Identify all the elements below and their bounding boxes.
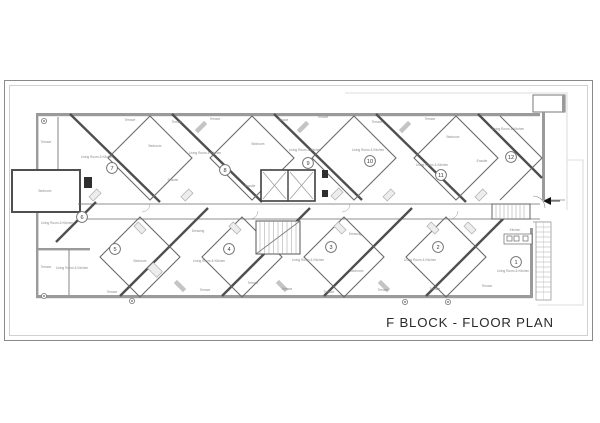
room-label: Terrace: [107, 290, 118, 294]
room-label: Terrace: [282, 287, 293, 291]
room-label: Terrace: [324, 290, 335, 294]
room-label: Terrace: [210, 117, 221, 121]
svg-text:2: 2: [436, 245, 439, 251]
room-label: Living Room & Kitchen: [492, 127, 524, 131]
svg-text:8: 8: [223, 168, 226, 174]
room-label: Terrace: [378, 288, 389, 292]
room-label: Living Room & Kitchen: [41, 221, 73, 225]
column-marker-icon: [41, 118, 46, 123]
unit-number-badge: 9: [303, 158, 314, 169]
room-label: Bedroom: [252, 142, 265, 146]
room-label: Dressing: [192, 229, 205, 233]
room-label: Terrace: [248, 281, 259, 285]
room-label: Living Room & Kitchen: [56, 266, 88, 270]
room-label: Terrace: [200, 288, 211, 292]
room-label: Living Room & Kitchen: [352, 148, 384, 152]
svg-text:4: 4: [227, 247, 230, 253]
svg-text:6: 6: [80, 215, 83, 221]
room-label: Terrace: [482, 284, 493, 288]
drawing-title: F BLOCK - FLOOR PLAN: [386, 315, 554, 330]
room-label: Terrace: [372, 120, 383, 124]
room-label: Living Room & Kitchen: [416, 163, 448, 167]
room-label: Terrace: [278, 118, 289, 122]
room-label: Living Room & Kitchen: [193, 259, 225, 263]
right-wall-upper: [542, 112, 545, 200]
unit-number-badge: 1: [511, 257, 522, 268]
room-label: Living Room & Kitchen: [81, 155, 113, 159]
column-marker-icon: [445, 299, 450, 304]
room-label: Terrace: [125, 118, 136, 122]
lift-core: [261, 170, 315, 201]
room-label: Living Room & Kitchen: [292, 258, 324, 262]
room-label: Bedroom: [134, 259, 147, 263]
external-stair: [536, 222, 551, 300]
room-label: Terrace: [172, 120, 183, 124]
room-label: Living Room & Kitchen: [189, 151, 221, 155]
top-right-room: [533, 95, 565, 112]
room-label: Bedroom: [149, 144, 162, 148]
kitchen-counter: [504, 234, 532, 244]
unit-number-badge: 11: [436, 170, 447, 181]
svg-text:9: 9: [306, 161, 309, 167]
room-label: Bedroom: [447, 135, 460, 139]
unit-number-badge: 10: [365, 156, 376, 167]
svg-text:12: 12: [508, 155, 514, 161]
unit-number-badge: 4: [224, 244, 235, 255]
room-label: Dressing: [349, 232, 362, 236]
bottom-wall: [36, 295, 532, 298]
svg-text:3: 3: [329, 245, 332, 251]
central-staircase: [256, 221, 300, 254]
room-label: Ensuite: [168, 178, 179, 182]
room-label: Terrace: [430, 287, 441, 291]
room-label: Bedroom: [351, 269, 364, 273]
column-marker-icon: [129, 298, 134, 303]
svg-text:1: 1: [514, 260, 517, 266]
drawing-sheet: Living Room & KitchenLiving Room & Kitch…: [0, 0, 600, 423]
floor-plan-canvas: Living Room & KitchenLiving Room & Kitch…: [0, 0, 600, 423]
unit-number-badge: 6: [77, 212, 88, 223]
unit-number-badge: 8: [220, 165, 231, 176]
room-label: Terrace: [425, 117, 436, 121]
column-marker-icon: [402, 299, 407, 304]
svg-text:7: 7: [110, 166, 113, 172]
room-label: Bedroom: [39, 189, 52, 193]
room-label: Living Room & Kitchen: [404, 258, 436, 262]
room-label: Terrace: [318, 115, 329, 119]
room-label: Terrace: [41, 265, 52, 269]
svg-text:11: 11: [438, 173, 444, 179]
column-marker-icon: [41, 293, 46, 298]
top-wall: [36, 113, 540, 116]
room-label: Ensuite: [245, 184, 256, 188]
svg-text:5: 5: [113, 247, 116, 253]
unit-number-badge: 7: [107, 163, 118, 174]
room-label: Living Room & Kitchen: [289, 148, 321, 152]
unit-number-badge: 3: [326, 242, 337, 253]
unit-number-badge: 5: [110, 244, 121, 255]
unit-number-badge: 12: [506, 152, 517, 163]
unit-number-badge: 2: [433, 242, 444, 253]
room-label: Ensuite: [477, 159, 488, 163]
room-label: Living Room & Kitchen: [497, 269, 529, 273]
room-label: Terrace: [41, 140, 52, 144]
room-label: Kitchen: [510, 228, 521, 232]
svg-text:10: 10: [367, 159, 373, 165]
